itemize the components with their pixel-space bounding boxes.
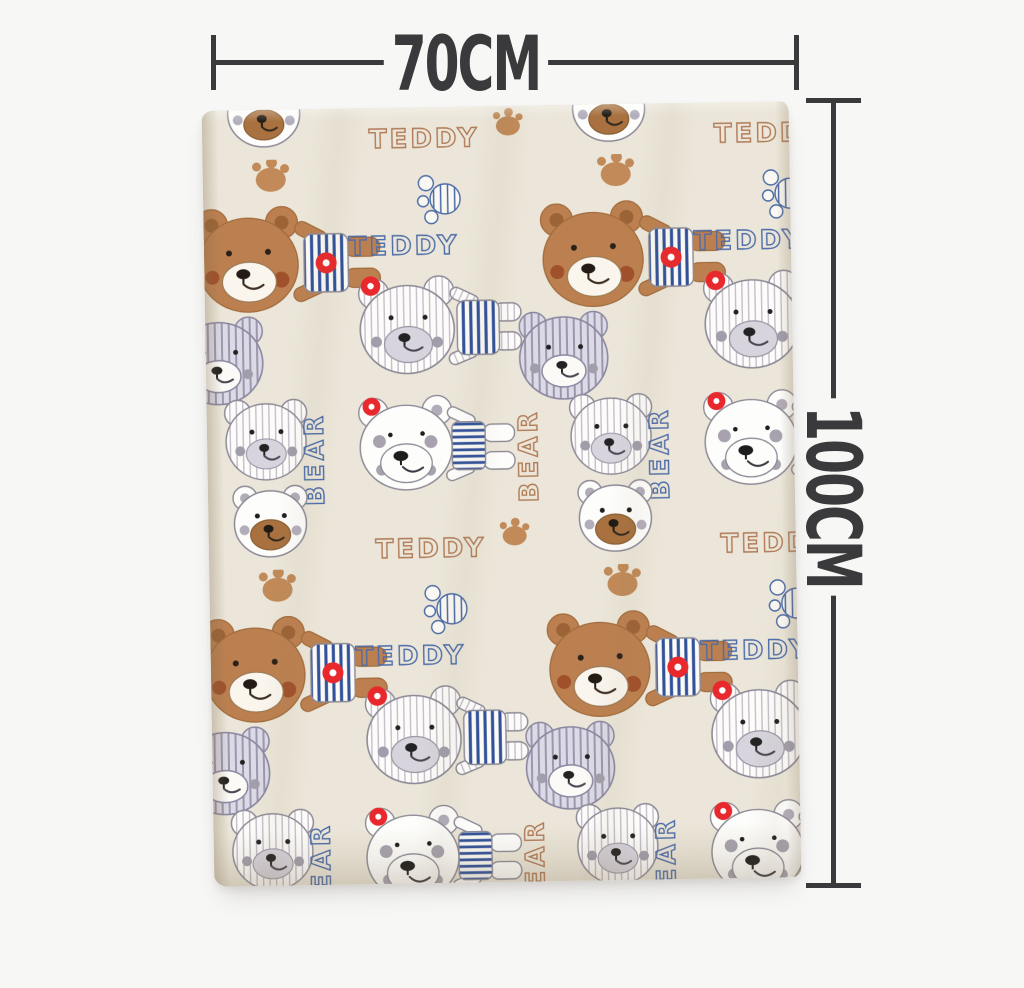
height-dimension-start-cap [806, 98, 861, 103]
height-dimension-end-cap [806, 883, 861, 888]
width-dimension-start-cap [211, 35, 216, 90]
height-dimension-label: 100CM [795, 398, 871, 595]
product-dimension-image: 70CM 100CM [0, 0, 1024, 988]
blanket-fabric-pattern [202, 101, 802, 887]
teddy-bear-pattern-svg: TEDDY BEAR [202, 101, 802, 887]
width-dimension-label: 70CM [384, 26, 548, 102]
width-dimension-end-cap [794, 35, 799, 90]
blanket-image: TEDDY BEAR [202, 101, 802, 887]
